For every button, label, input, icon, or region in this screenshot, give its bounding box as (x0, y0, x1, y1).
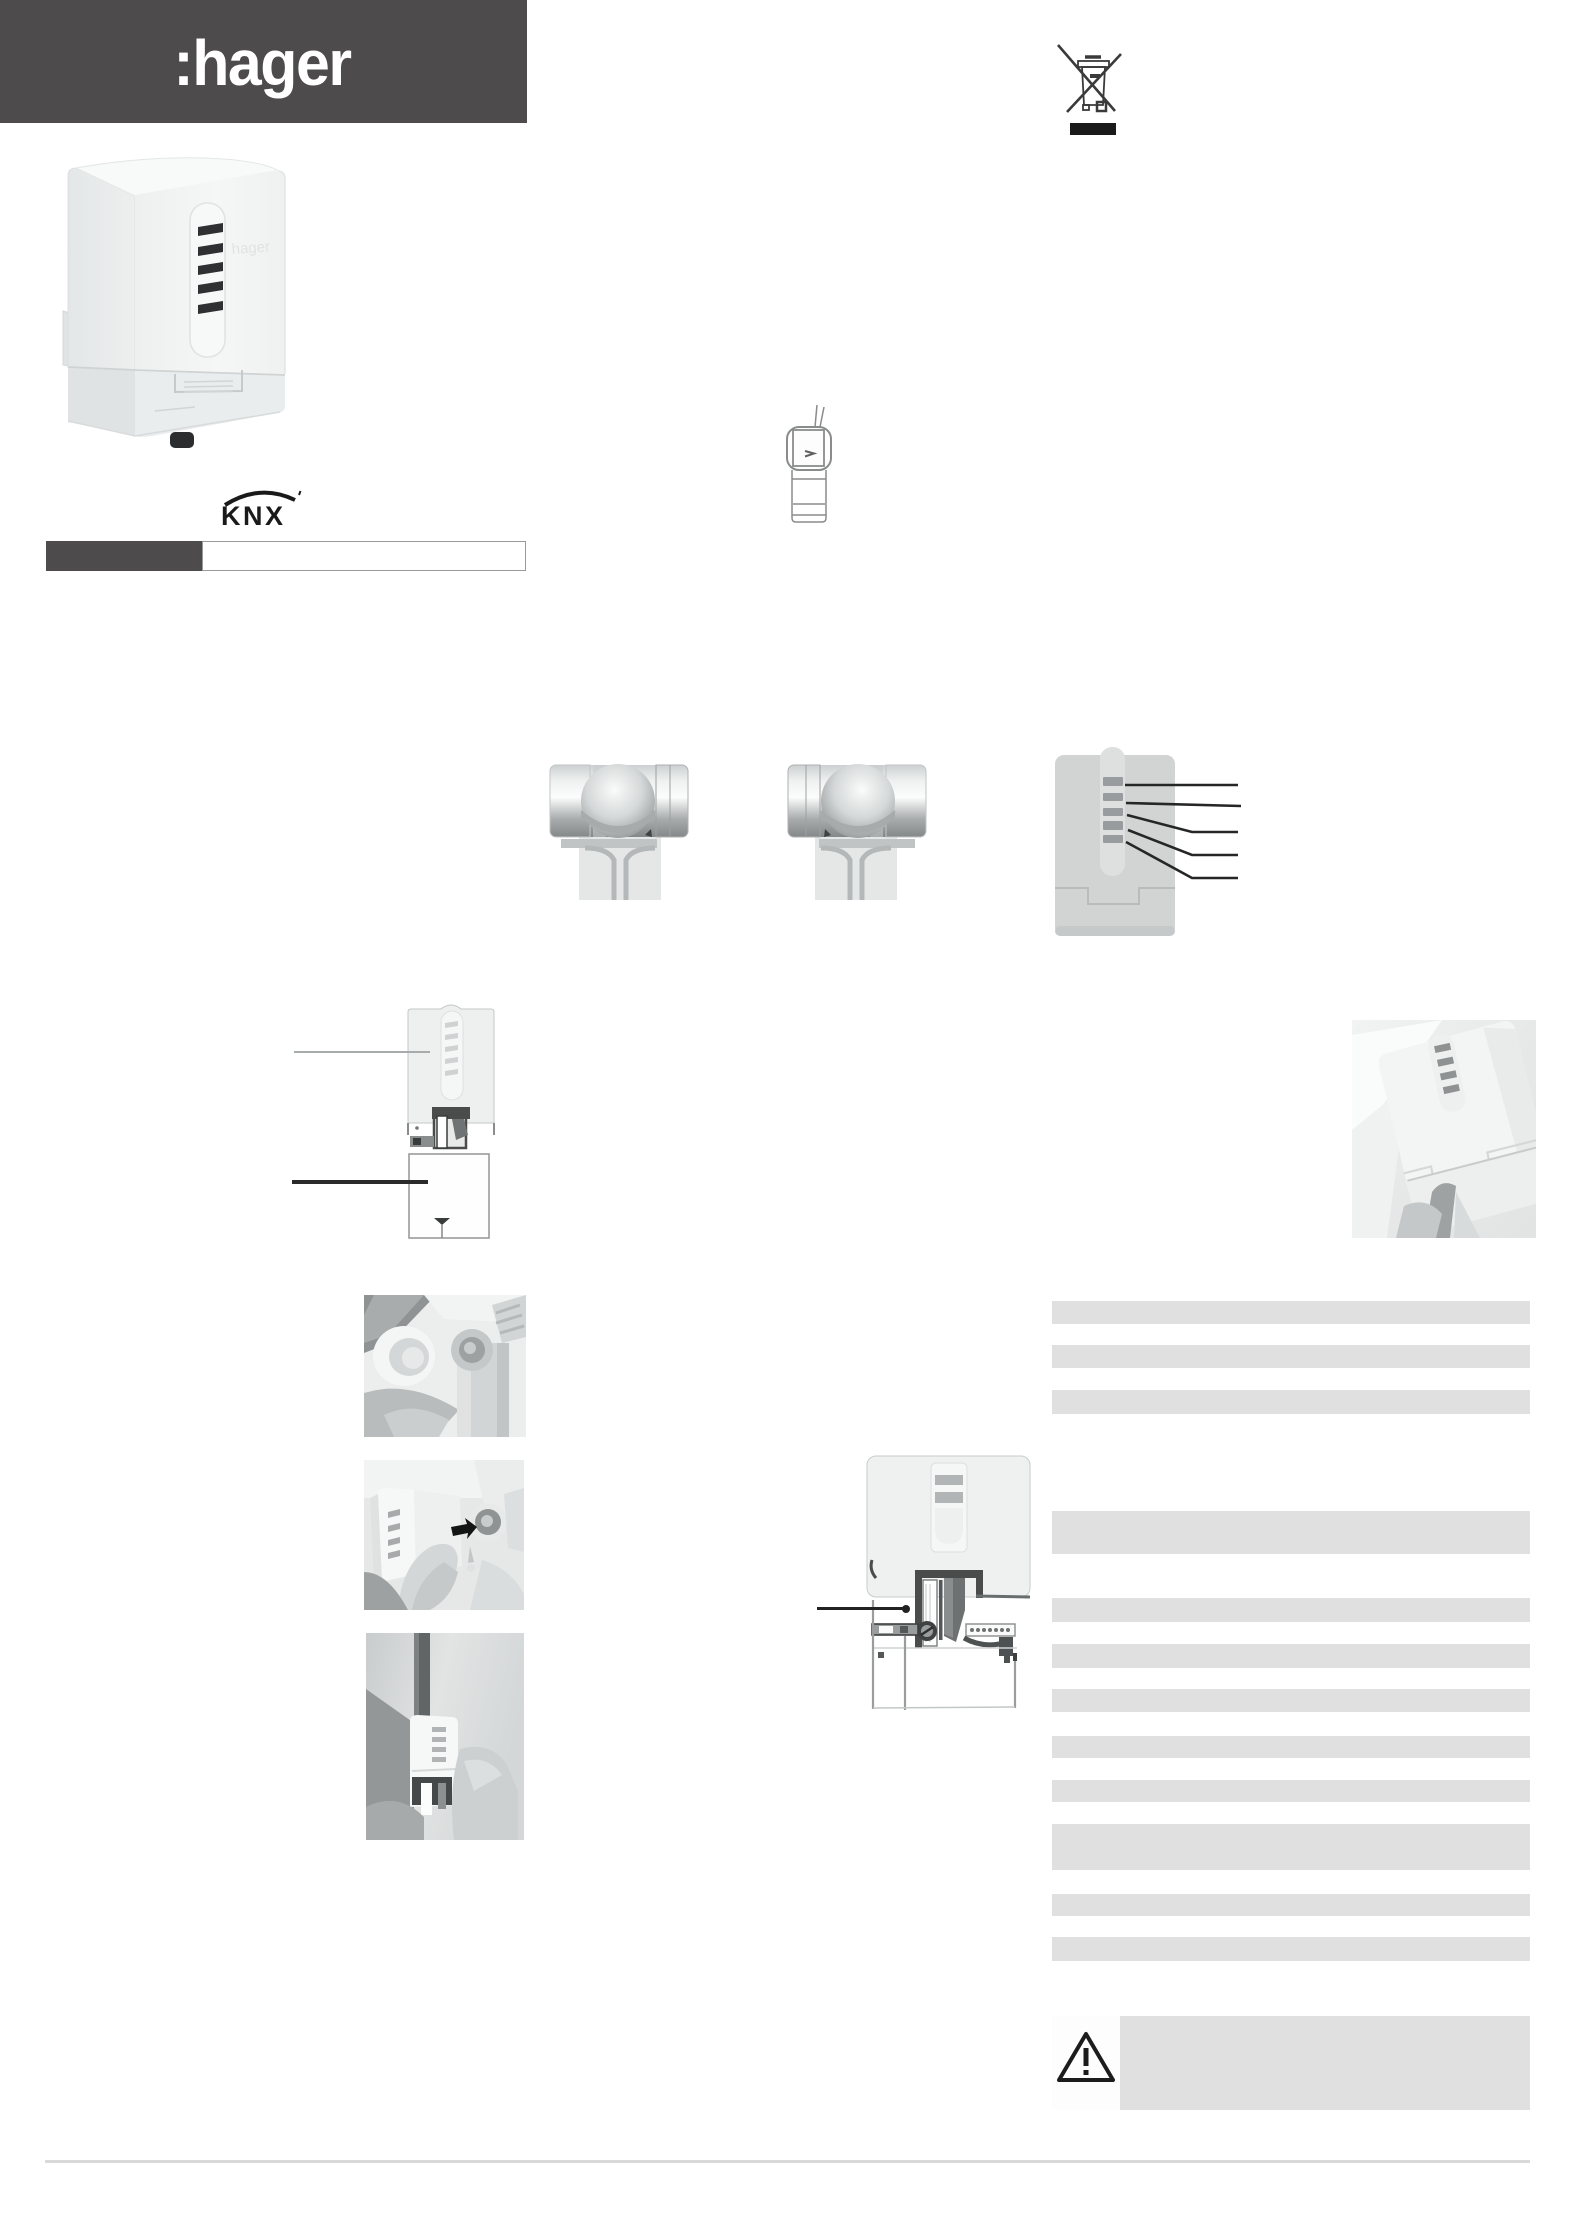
svg-text:hager: hager (231, 238, 270, 258)
svg-text:KNX: KNX (221, 501, 286, 528)
